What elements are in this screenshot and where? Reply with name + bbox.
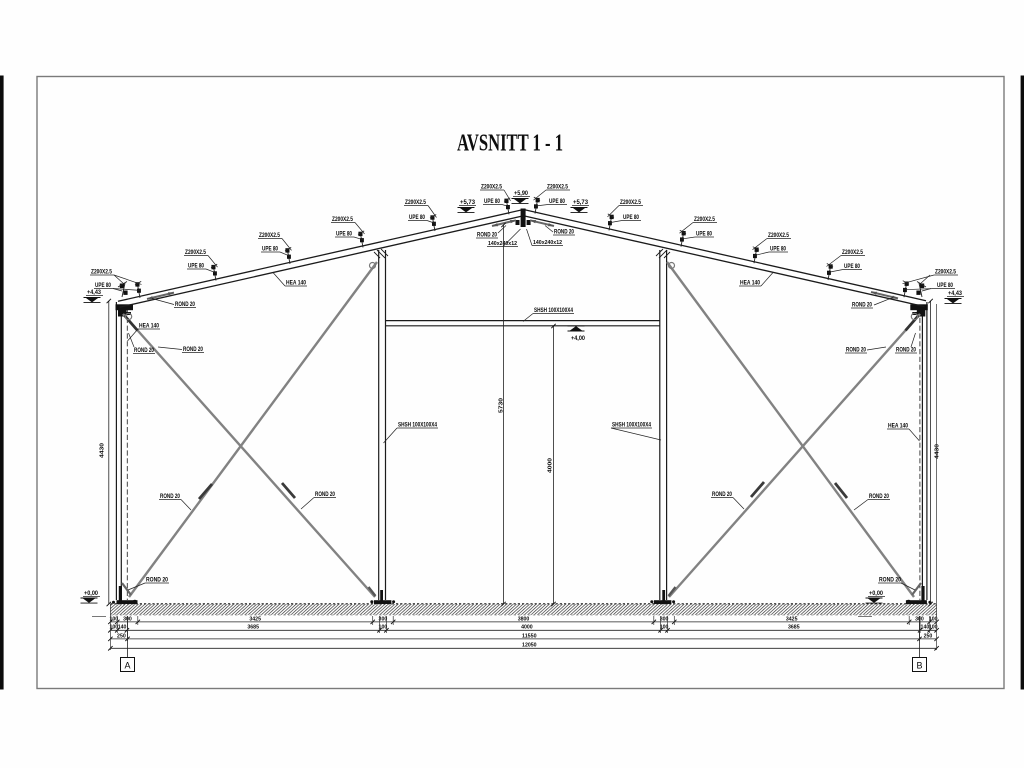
svg-text:Z200X2.5: Z200X2.5 xyxy=(842,250,864,256)
svg-text:UPE 80: UPE 80 xyxy=(770,247,787,253)
svg-text:140: 140 xyxy=(118,625,127,631)
svg-text:Z200X2.5: Z200X2.5 xyxy=(405,200,427,206)
svg-text:Z200X2.5: Z200X2.5 xyxy=(547,185,569,191)
svg-text:4430: 4430 xyxy=(935,444,941,459)
svg-text:11550: 11550 xyxy=(522,633,537,639)
svg-text:Z200X2.5: Z200X2.5 xyxy=(332,217,354,223)
svg-text:ROND 20: ROND 20 xyxy=(146,578,169,584)
svg-text:Z200X2.5: Z200X2.5 xyxy=(620,200,642,206)
svg-text:4430: 4430 xyxy=(99,443,105,458)
svg-text:ROND 20: ROND 20 xyxy=(554,230,575,236)
svg-text:SHSH 100X100X4: SHSH 100X100X4 xyxy=(612,423,652,429)
svg-text:SHSH 100X100X4: SHSH 100X100X4 xyxy=(398,423,438,429)
svg-text:ROND 20: ROND 20 xyxy=(477,233,498,239)
svg-text:ROND 20: ROND 20 xyxy=(869,494,890,500)
svg-text:3685: 3685 xyxy=(247,625,259,631)
svg-text:+0,00: +0,00 xyxy=(869,591,884,597)
svg-text:UPE 80: UPE 80 xyxy=(623,215,640,221)
svg-text:UPE 80: UPE 80 xyxy=(409,215,426,221)
svg-text:ROND 20: ROND 20 xyxy=(846,348,867,354)
svg-text:Z200X2.5: Z200X2.5 xyxy=(91,270,113,276)
svg-text:A: A xyxy=(124,661,130,671)
svg-text:Z200X2.5: Z200X2.5 xyxy=(694,217,716,223)
svg-text:+4,43: +4,43 xyxy=(948,291,963,297)
svg-text:+5,90: +5,90 xyxy=(514,191,529,197)
svg-text:+4,00: +4,00 xyxy=(571,336,586,342)
svg-text:3425: 3425 xyxy=(786,616,798,622)
svg-text:UPE 80: UPE 80 xyxy=(549,199,566,205)
svg-text:ROND 20: ROND 20 xyxy=(160,494,181,500)
svg-text:300: 300 xyxy=(379,616,388,622)
svg-text:140x240x12: 140x240x12 xyxy=(533,240,562,246)
svg-text:+5,73: +5,73 xyxy=(460,200,476,206)
svg-text:100: 100 xyxy=(379,625,388,631)
svg-text:3425: 3425 xyxy=(249,616,261,622)
svg-text:250: 250 xyxy=(117,633,126,639)
svg-text:100: 100 xyxy=(109,616,118,622)
svg-text:ROND 20: ROND 20 xyxy=(315,492,336,498)
svg-text:HEA 140: HEA 140 xyxy=(740,281,761,287)
svg-text:HEA 140: HEA 140 xyxy=(139,324,160,330)
svg-text:ROND 20: ROND 20 xyxy=(712,492,733,498)
svg-text:3685: 3685 xyxy=(788,625,800,631)
svg-text:UPE 80: UPE 80 xyxy=(188,264,205,270)
svg-text:HEA 140: HEA 140 xyxy=(286,281,307,287)
svg-text:Z200X2.5: Z200X2.5 xyxy=(935,270,957,276)
svg-text:Z200X2.5: Z200X2.5 xyxy=(185,250,207,256)
svg-text:ROND 20: ROND 20 xyxy=(879,578,902,584)
svg-text:UPE 80: UPE 80 xyxy=(336,232,353,238)
svg-text:4000: 4000 xyxy=(521,625,533,631)
svg-text:Z200X2.5: Z200X2.5 xyxy=(259,233,281,239)
svg-text:UPE 80: UPE 80 xyxy=(484,199,501,205)
svg-text:+4,43: +4,43 xyxy=(87,290,102,296)
svg-text:+0,00: +0,00 xyxy=(84,591,99,597)
svg-text:ROND 20: ROND 20 xyxy=(183,347,204,353)
svg-text:100: 100 xyxy=(929,616,938,622)
svg-text:UPE 80: UPE 80 xyxy=(95,283,112,289)
svg-text:UPE 80: UPE 80 xyxy=(696,232,713,238)
svg-text:ROND 20: ROND 20 xyxy=(852,303,873,309)
svg-text:UPE 80: UPE 80 xyxy=(844,264,861,270)
svg-text:UPE 80: UPE 80 xyxy=(937,283,954,289)
svg-text:UPE 80: UPE 80 xyxy=(262,247,279,253)
svg-text:4000: 4000 xyxy=(548,458,554,473)
svg-text:SHSH 100X100X4: SHSH 100X100X4 xyxy=(534,308,574,314)
svg-text:HEA 140: HEA 140 xyxy=(888,424,909,430)
svg-text:ROND 20: ROND 20 xyxy=(175,302,196,308)
svg-text:ROND 20: ROND 20 xyxy=(134,348,155,354)
svg-text:ROND 20: ROND 20 xyxy=(896,348,917,354)
svg-text:100: 100 xyxy=(929,625,938,631)
svg-text:250: 250 xyxy=(924,633,933,639)
svg-text:Z200X2.5: Z200X2.5 xyxy=(481,185,503,191)
svg-text:100: 100 xyxy=(660,625,669,631)
svg-text:5730: 5730 xyxy=(498,398,504,413)
svg-text:140x240x12: 140x240x12 xyxy=(488,241,517,247)
svg-text:Z200X2.5: Z200X2.5 xyxy=(768,233,790,239)
svg-text:+5,73: +5,73 xyxy=(573,200,589,206)
svg-text:AVSNITT 1 - 1: AVSNITT 1 - 1 xyxy=(457,131,563,157)
svg-text:B: B xyxy=(916,661,922,671)
svg-text:12050: 12050 xyxy=(522,643,537,649)
svg-text:300: 300 xyxy=(660,616,669,622)
svg-text:3800: 3800 xyxy=(518,616,530,622)
